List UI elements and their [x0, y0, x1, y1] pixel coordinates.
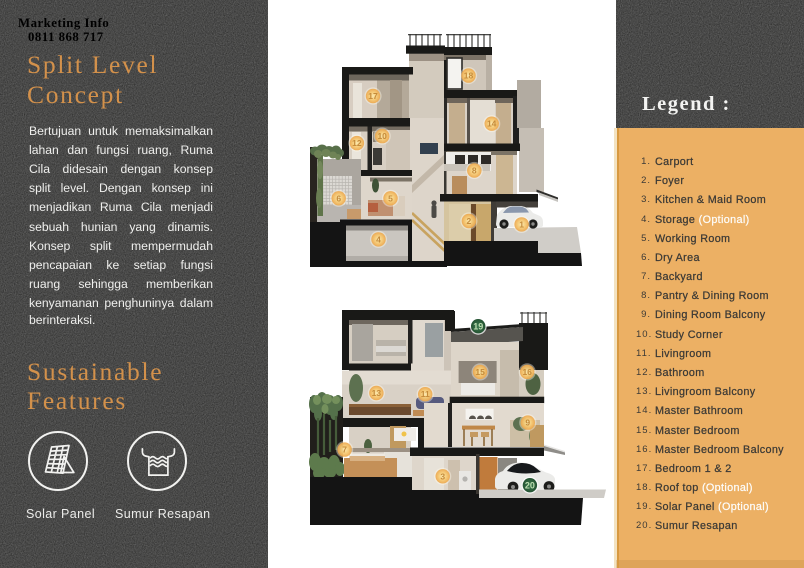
svg-text:3: 3 [440, 471, 445, 481]
svg-text:8: 8 [472, 166, 477, 176]
svg-text:7: 7 [342, 445, 347, 455]
svg-text:9: 9 [525, 418, 530, 428]
svg-text:19: 19 [473, 321, 483, 331]
svg-text:5: 5 [388, 193, 393, 203]
svg-text:13: 13 [372, 388, 382, 398]
svg-text:6: 6 [336, 193, 341, 203]
svg-text:15: 15 [475, 367, 485, 377]
svg-text:14: 14 [487, 119, 497, 129]
svg-text:2: 2 [467, 216, 472, 226]
svg-text:1: 1 [519, 219, 524, 229]
svg-text:16: 16 [522, 367, 532, 377]
svg-text:11: 11 [421, 389, 430, 399]
svg-text:17: 17 [368, 91, 378, 101]
svg-text:4: 4 [376, 234, 381, 244]
svg-text:18: 18 [464, 71, 474, 81]
svg-text:10: 10 [377, 131, 387, 141]
svg-text:20: 20 [525, 480, 535, 490]
svg-text:12: 12 [352, 138, 362, 148]
